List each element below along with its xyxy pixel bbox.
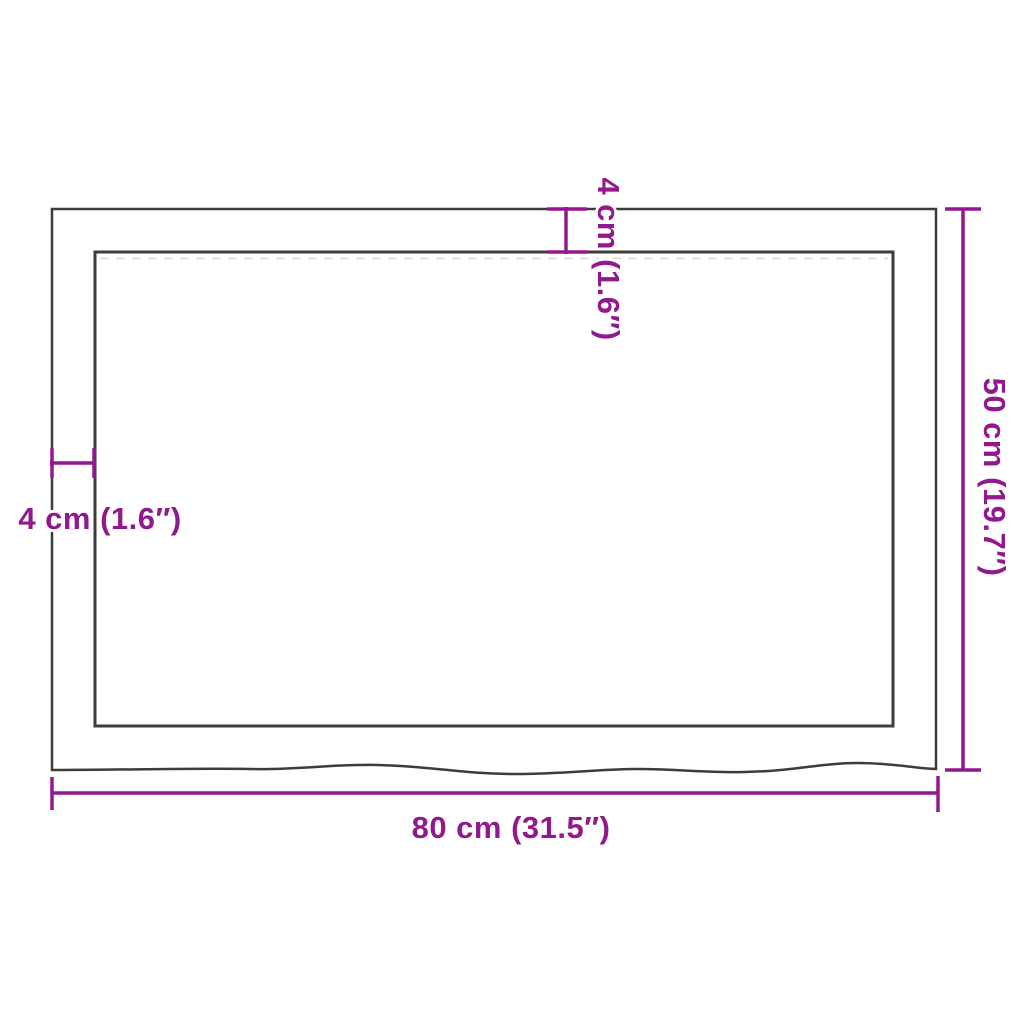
- thickness-top-label: 4 cm (1.6″): [590, 177, 626, 340]
- board-outer-edge: [52, 209, 936, 774]
- thickness-left-label: 4 cm (1.6″): [18, 501, 181, 537]
- thickness-left-dimension: [50, 448, 96, 478]
- thickness-top-dimension: [547, 207, 587, 254]
- height-label: 50 cm (19.7″): [976, 378, 1012, 577]
- board-inner-edge: [95, 252, 893, 726]
- width-label: 80 cm (31.5″): [412, 810, 611, 846]
- width-dimension: [52, 776, 938, 812]
- dimension-diagram: 4 cm (1.6″) 4 cm (1.6″) 50 cm (19.7″) 80…: [0, 0, 1024, 1024]
